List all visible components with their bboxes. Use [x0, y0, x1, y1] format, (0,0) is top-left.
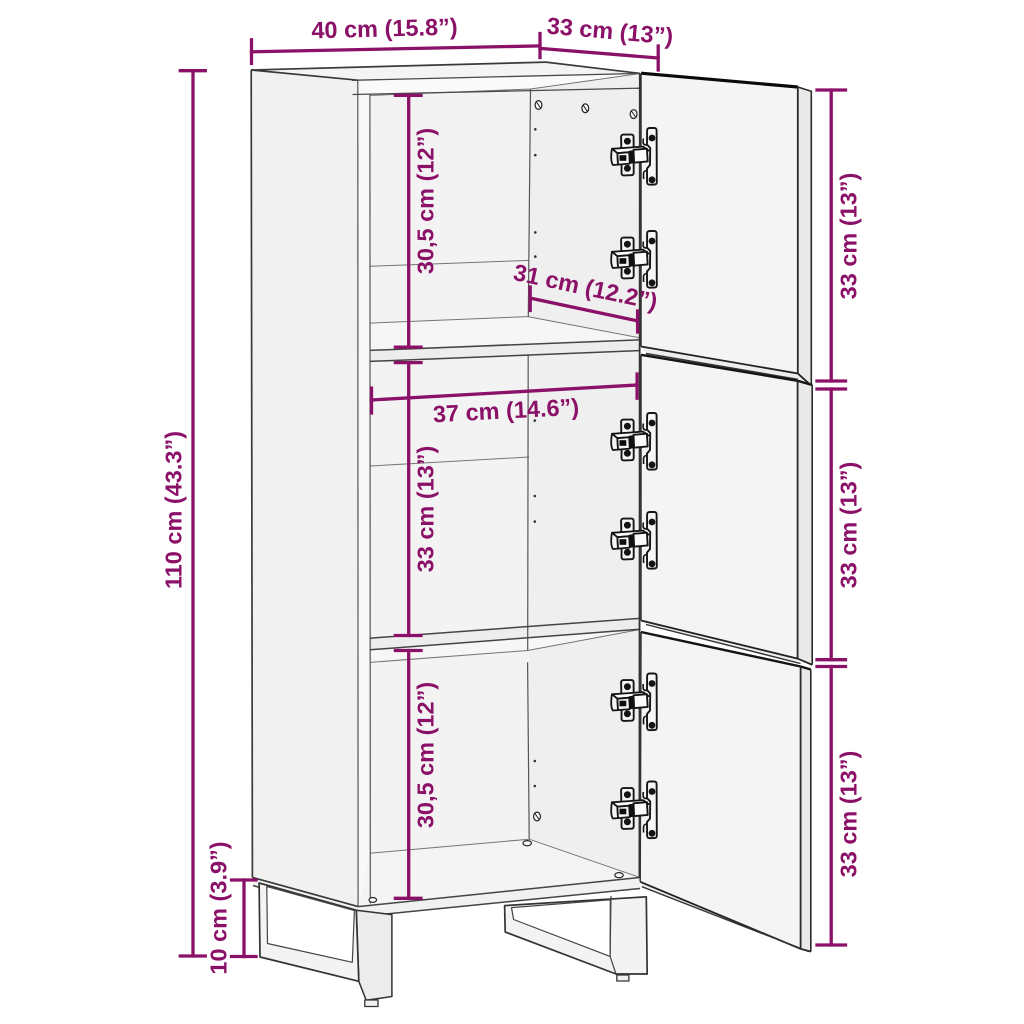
svg-text:33 cm (13”): 33 cm (13”): [836, 462, 862, 589]
svg-text:10 cm (3.9”): 10 cm (3.9”): [206, 841, 232, 974]
svg-text:110 cm (43.3”): 110 cm (43.3”): [161, 431, 187, 589]
svg-text:33 cm (13”): 33 cm (13”): [836, 173, 862, 300]
svg-text:30,5 cm (12”): 30,5 cm (12”): [413, 128, 439, 274]
svg-text:33 cm (13”): 33 cm (13”): [836, 751, 862, 878]
svg-text:33 cm (13”): 33 cm (13”): [413, 446, 439, 573]
svg-text:40 cm (15.8”): 40 cm (15.8”): [311, 14, 458, 44]
svg-text:30,5 cm (12”): 30,5 cm (12”): [413, 682, 439, 828]
